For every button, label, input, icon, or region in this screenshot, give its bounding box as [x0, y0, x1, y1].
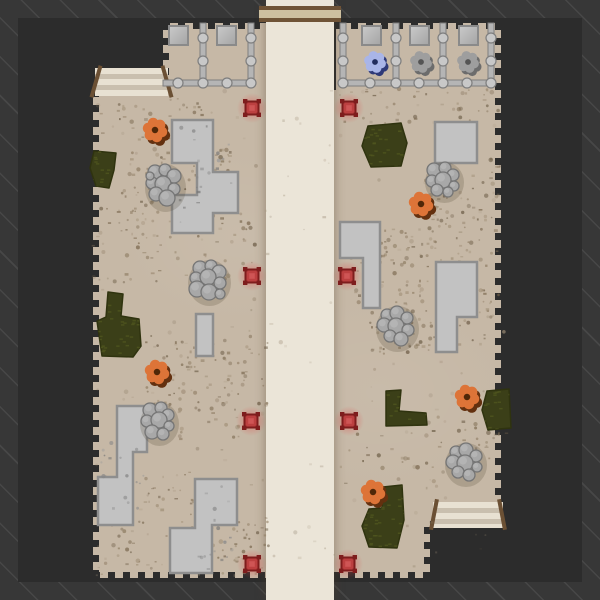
spawn-marker[interactable]: [334, 406, 364, 436]
spawn-marker[interactable]: [237, 93, 267, 123]
fence-joint: [198, 33, 208, 43]
concrete-slab: [98, 406, 147, 525]
spawn-marker[interactable]: [332, 261, 362, 291]
rock-cluster: [188, 260, 231, 306]
fence-joint: [486, 78, 496, 88]
turret-blue[interactable]: [364, 51, 388, 76]
fence-joint: [391, 56, 401, 66]
rock-cluster: [445, 443, 487, 487]
fence-joint: [486, 33, 496, 43]
fence-joint: [246, 78, 256, 88]
turret-gray[interactable]: [410, 51, 434, 76]
fence-joint: [486, 56, 496, 66]
rock-cluster: [376, 306, 419, 352]
game-map-viewport: [0, 0, 600, 600]
bush: [386, 390, 429, 427]
concrete-slab: [435, 122, 477, 163]
turret-pad[interactable]: [410, 26, 429, 45]
concrete-slab: [196, 314, 213, 356]
spawn-marker[interactable]: [333, 549, 363, 579]
fence-joint: [338, 56, 348, 66]
fence-joint: [222, 78, 232, 88]
concrete-slab: [170, 479, 237, 573]
spawn-marker[interactable]: [237, 549, 267, 579]
bush: [97, 292, 144, 358]
turret-gray[interactable]: [457, 51, 481, 76]
rock-cluster: [145, 164, 186, 212]
fence-joint: [391, 78, 401, 88]
fence-joint: [365, 78, 375, 88]
fence-joint: [246, 33, 256, 43]
map-objects-layer: [0, 0, 600, 600]
critter-orange[interactable]: [455, 385, 482, 413]
turret-pad[interactable]: [459, 26, 478, 45]
concrete-slab: [436, 262, 477, 352]
turret-pad[interactable]: [362, 26, 381, 45]
rock-cluster: [140, 402, 179, 446]
spawn-marker[interactable]: [334, 93, 364, 123]
fence-joint: [438, 33, 448, 43]
spawn-marker[interactable]: [237, 261, 267, 291]
fence-joint: [462, 78, 472, 88]
fence-joint: [246, 56, 256, 66]
turret-pad[interactable]: [217, 26, 236, 45]
fence-joint: [414, 78, 424, 88]
spawn-marker[interactable]: [236, 406, 266, 436]
fence-joint: [391, 33, 401, 43]
fence-joint: [198, 56, 208, 66]
turret-pad[interactable]: [169, 26, 188, 45]
fence-joint: [338, 33, 348, 43]
bush: [362, 123, 410, 167]
critter-orange[interactable]: [143, 118, 170, 146]
fence-joint: [173, 78, 183, 88]
bush: [482, 389, 513, 430]
fence-joint: [338, 78, 348, 88]
fence-joint: [198, 78, 208, 88]
fence-joint: [438, 56, 448, 66]
bush: [90, 151, 119, 189]
fence-joint: [438, 78, 448, 88]
critter-orange[interactable]: [145, 360, 172, 388]
